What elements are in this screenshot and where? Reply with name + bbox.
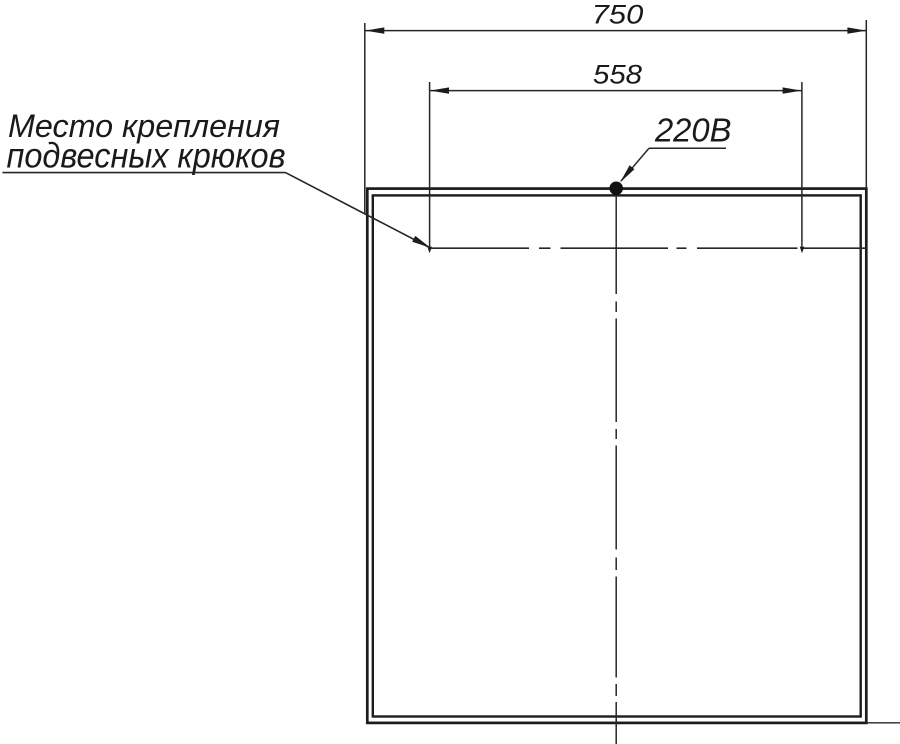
svg-text:558: 558: [593, 59, 642, 89]
svg-text:750: 750: [592, 0, 644, 30]
svg-text:подвесных крюков: подвесных крюков: [7, 137, 286, 176]
svg-text:220В: 220В: [654, 111, 731, 148]
